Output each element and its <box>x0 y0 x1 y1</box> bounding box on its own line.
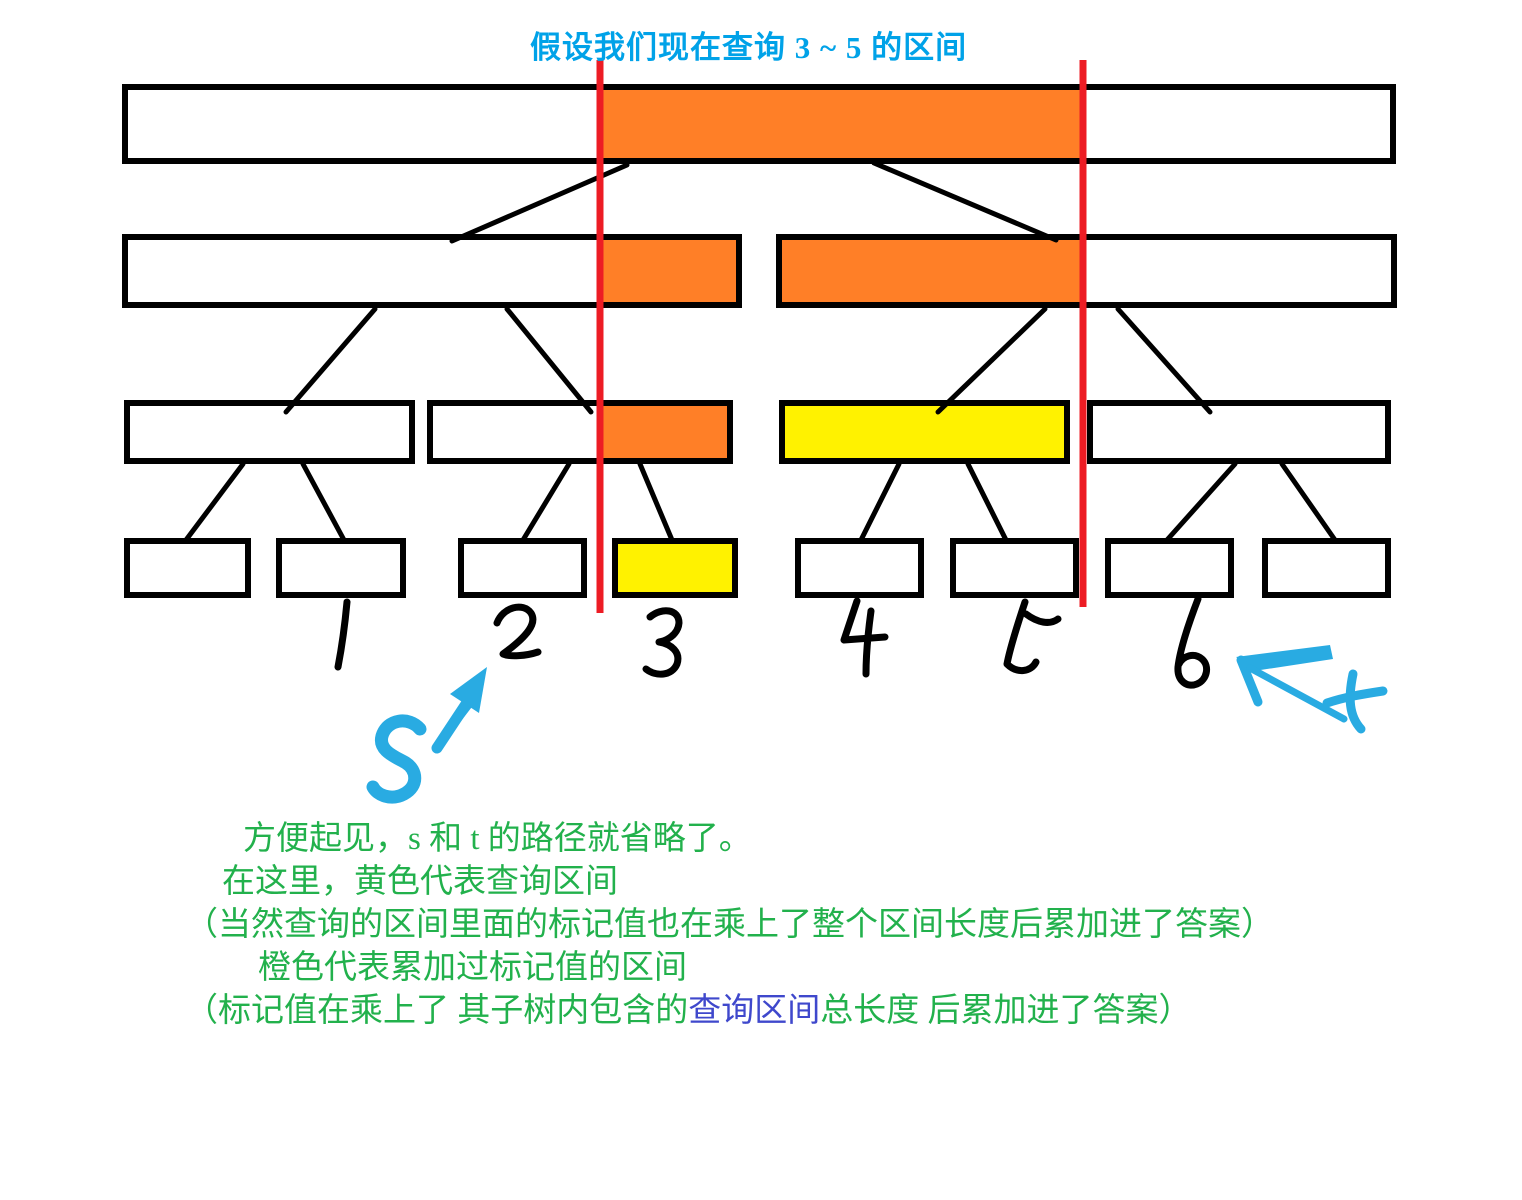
leaf-label-3 <box>646 611 679 674</box>
tree-edge <box>640 464 672 540</box>
t-label-glyph-vertical <box>1350 674 1361 729</box>
leaf-label-6 <box>1178 599 1207 685</box>
highlight-orange-segment-root <box>600 90 1082 158</box>
segment-tree-diagram: 假设我们现在查询 3 ~ 5 的区间 方便起见，s 和 t 的路径就省略了。 在… <box>0 0 1522 1200</box>
tree-edge <box>874 163 1056 240</box>
leaf-label-2 <box>497 607 538 656</box>
tree-edge <box>861 464 899 540</box>
tree-node-leaf-7 <box>1265 541 1388 595</box>
tree-node-leaf-2 <box>461 541 584 595</box>
note-line-5-prefix: （标记值在乘上了 其子树内包含的 <box>185 993 688 1029</box>
tree-edge <box>507 309 591 412</box>
note-line-5-highlight: 查询区间 <box>688 993 820 1029</box>
tree-edge <box>286 309 375 412</box>
tree-edge <box>303 464 344 540</box>
note-line-4: 橙色代表累加过标记值的区间 <box>258 947 1274 990</box>
notes-block: 方便起见，s 和 t 的路径就省略了。 在这里，黄色代表查询区间 （当然查询的区… <box>0 818 1274 1033</box>
tree-edge <box>968 464 1006 540</box>
highlight-orange-segment-n2-left <box>600 240 739 302</box>
highlight-yellow-segment-leaf-3 <box>615 544 735 592</box>
tree-edge <box>523 464 569 540</box>
tree-node-leaf-6 <box>1108 541 1231 595</box>
leaf-label-1 <box>338 602 347 667</box>
note-line-3: （当然查询的区间里面的标记值也在乘上了整个区间长度后累加进了答案） <box>185 904 1274 947</box>
highlight-orange-segment-n2-right <box>779 240 1082 302</box>
leaf-label-5 <box>1007 602 1058 671</box>
tree-edge <box>1282 464 1335 540</box>
tree-edge <box>1118 309 1210 412</box>
tree-node-leaf-0 <box>127 541 248 595</box>
tree-node-leaf-4 <box>798 541 921 595</box>
note-line-5-suffix: 总长度 后累加进了答案） <box>820 993 1191 1029</box>
s-arrow-head <box>450 667 487 713</box>
note-line-2: 在这里，黄色代表查询区间 <box>222 861 1274 904</box>
highlight-yellow-segment-n3-c <box>782 406 1067 458</box>
tree-edge <box>1167 464 1235 540</box>
tree-node-n3-d <box>1090 403 1388 461</box>
tree-node-n3-a <box>127 403 412 461</box>
t-arrow-shaft <box>1250 668 1344 719</box>
tree-edge <box>186 464 243 540</box>
note-line-1: 方便起见，s 和 t 的路径就省略了。 <box>243 818 1274 861</box>
tree-edge <box>938 309 1045 412</box>
note-line-5: （标记值在乘上了 其子树内包含的查询区间总长度 后累加进了答案） <box>185 990 1274 1033</box>
leaf-label-4 <box>844 601 885 674</box>
tree-node-leaf-5 <box>953 541 1076 595</box>
t-label-glyph-cross <box>1327 691 1383 703</box>
diagram-title: 假设我们现在查询 3 ~ 5 的区间 <box>530 22 967 67</box>
s-label-glyph <box>373 721 420 797</box>
highlight-orange-segment-n3-b <box>601 406 730 458</box>
tree-node-leaf-1 <box>279 541 403 595</box>
